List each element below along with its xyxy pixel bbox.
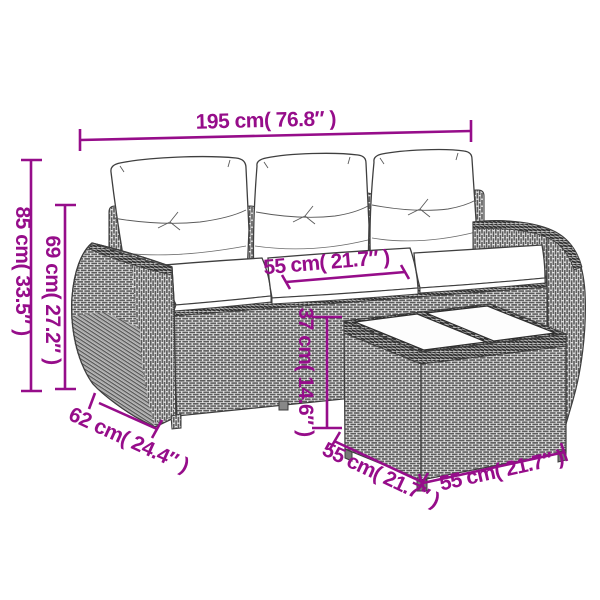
svg-text:195 cm( 76.8″ ): 195 cm( 76.8″ )	[195, 107, 336, 133]
svg-text:69 cm( 27.2″ ): 69 cm( 27.2″ )	[41, 235, 64, 364]
svg-text:37 cm( 14.6″ ): 37 cm( 14.6″ )	[294, 307, 317, 436]
svg-text:85 cm( 33.5″ ): 85 cm( 33.5″ )	[11, 206, 34, 335]
